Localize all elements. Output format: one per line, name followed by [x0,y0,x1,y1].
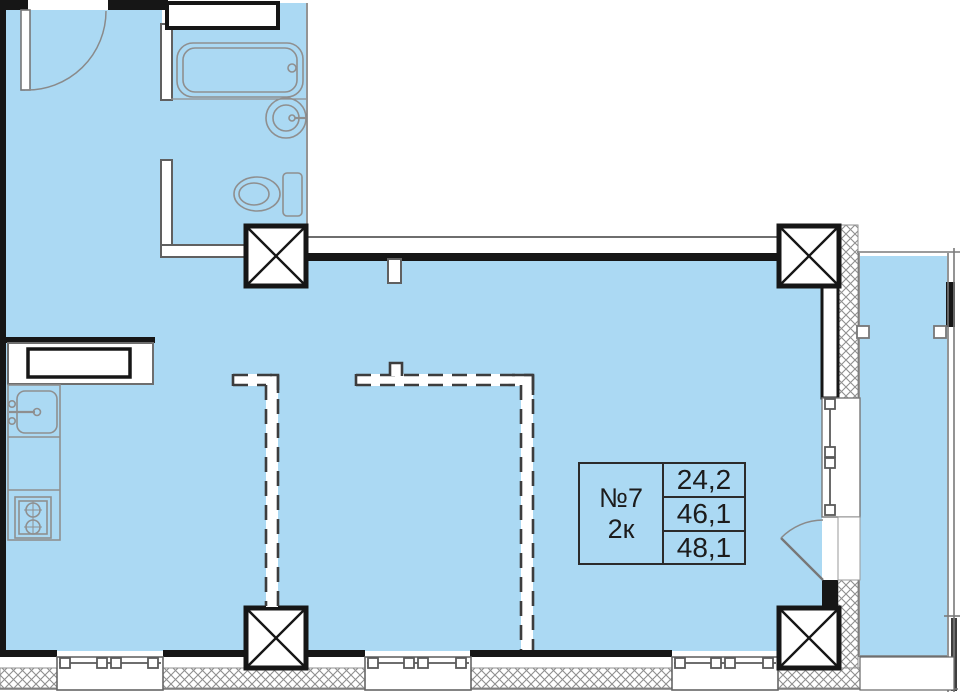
floor-plan: №7 2к 24,2 46,1 48,1 [0,0,960,700]
column-x-icon [779,608,839,668]
balcony-window-glyph [822,398,860,517]
unit-rooms: 2к [608,514,635,545]
glazing-tab [934,326,946,338]
unit-areas: 24,2 46,1 48,1 [664,464,744,563]
kitchen-wall-unit [8,343,153,384]
unit-area-value: 24,2 [664,464,744,496]
unit-info-table: №7 2к 24,2 46,1 48,1 [578,462,746,565]
unit-area-value: 46,1 [664,496,744,530]
unit-number: №7 [599,483,643,514]
floor-plan-drawing [0,0,960,700]
column-x-icon [779,226,839,286]
room-fills [6,3,947,656]
column-x-icon [246,608,306,668]
column-x-icon [246,226,306,286]
unit-area-value: 48,1 [664,530,744,564]
glazing-tab [857,326,869,338]
duct-shaft [167,3,278,28]
unit-id-cell: №7 2к [580,464,664,563]
